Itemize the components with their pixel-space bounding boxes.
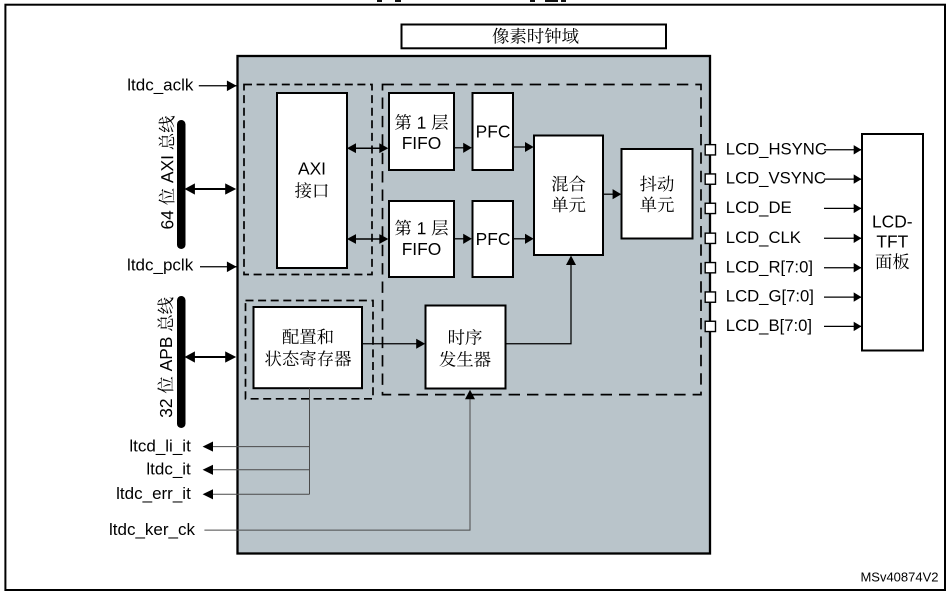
svg-text:FIFO: FIFO [402, 133, 442, 153]
svg-text:LCD_B[7:0]: LCD_B[7:0] [726, 316, 812, 335]
svg-text:ltdc_err_it: ltdc_err_it [116, 484, 191, 503]
svg-text:ltcd_li_it: ltcd_li_it [129, 436, 191, 455]
svg-text:PFC: PFC [476, 229, 511, 249]
svg-text:ltdc_aclk: ltdc_aclk [127, 75, 194, 94]
svg-text:LCD_HSYNC: LCD_HSYNC [726, 139, 827, 158]
svg-text:FIFO: FIFO [402, 239, 442, 259]
svg-text:ltdc_ker_ck: ltdc_ker_ck [109, 520, 195, 539]
svg-text:LCD_G[7:0]: LCD_G[7:0] [726, 287, 814, 306]
svg-text:LCD_CLK: LCD_CLK [726, 228, 801, 247]
svg-text:ltdc_pclk: ltdc_pclk [127, 255, 194, 274]
svg-text:LCD_DE: LCD_DE [726, 198, 792, 217]
svg-text:TFT: TFT [876, 232, 908, 252]
svg-text:PFC: PFC [476, 122, 511, 142]
svg-text:AXI: AXI [298, 158, 326, 178]
svg-text:MSv40874V2: MSv40874V2 [860, 570, 938, 585]
svg-text:LCD_VSYNC: LCD_VSYNC [726, 169, 826, 188]
svg-text:LCD_R[7:0]: LCD_R[7:0] [726, 257, 813, 276]
svg-text:ltdc_it: ltdc_it [146, 460, 191, 479]
svg-text:LCD-: LCD- [872, 211, 913, 231]
